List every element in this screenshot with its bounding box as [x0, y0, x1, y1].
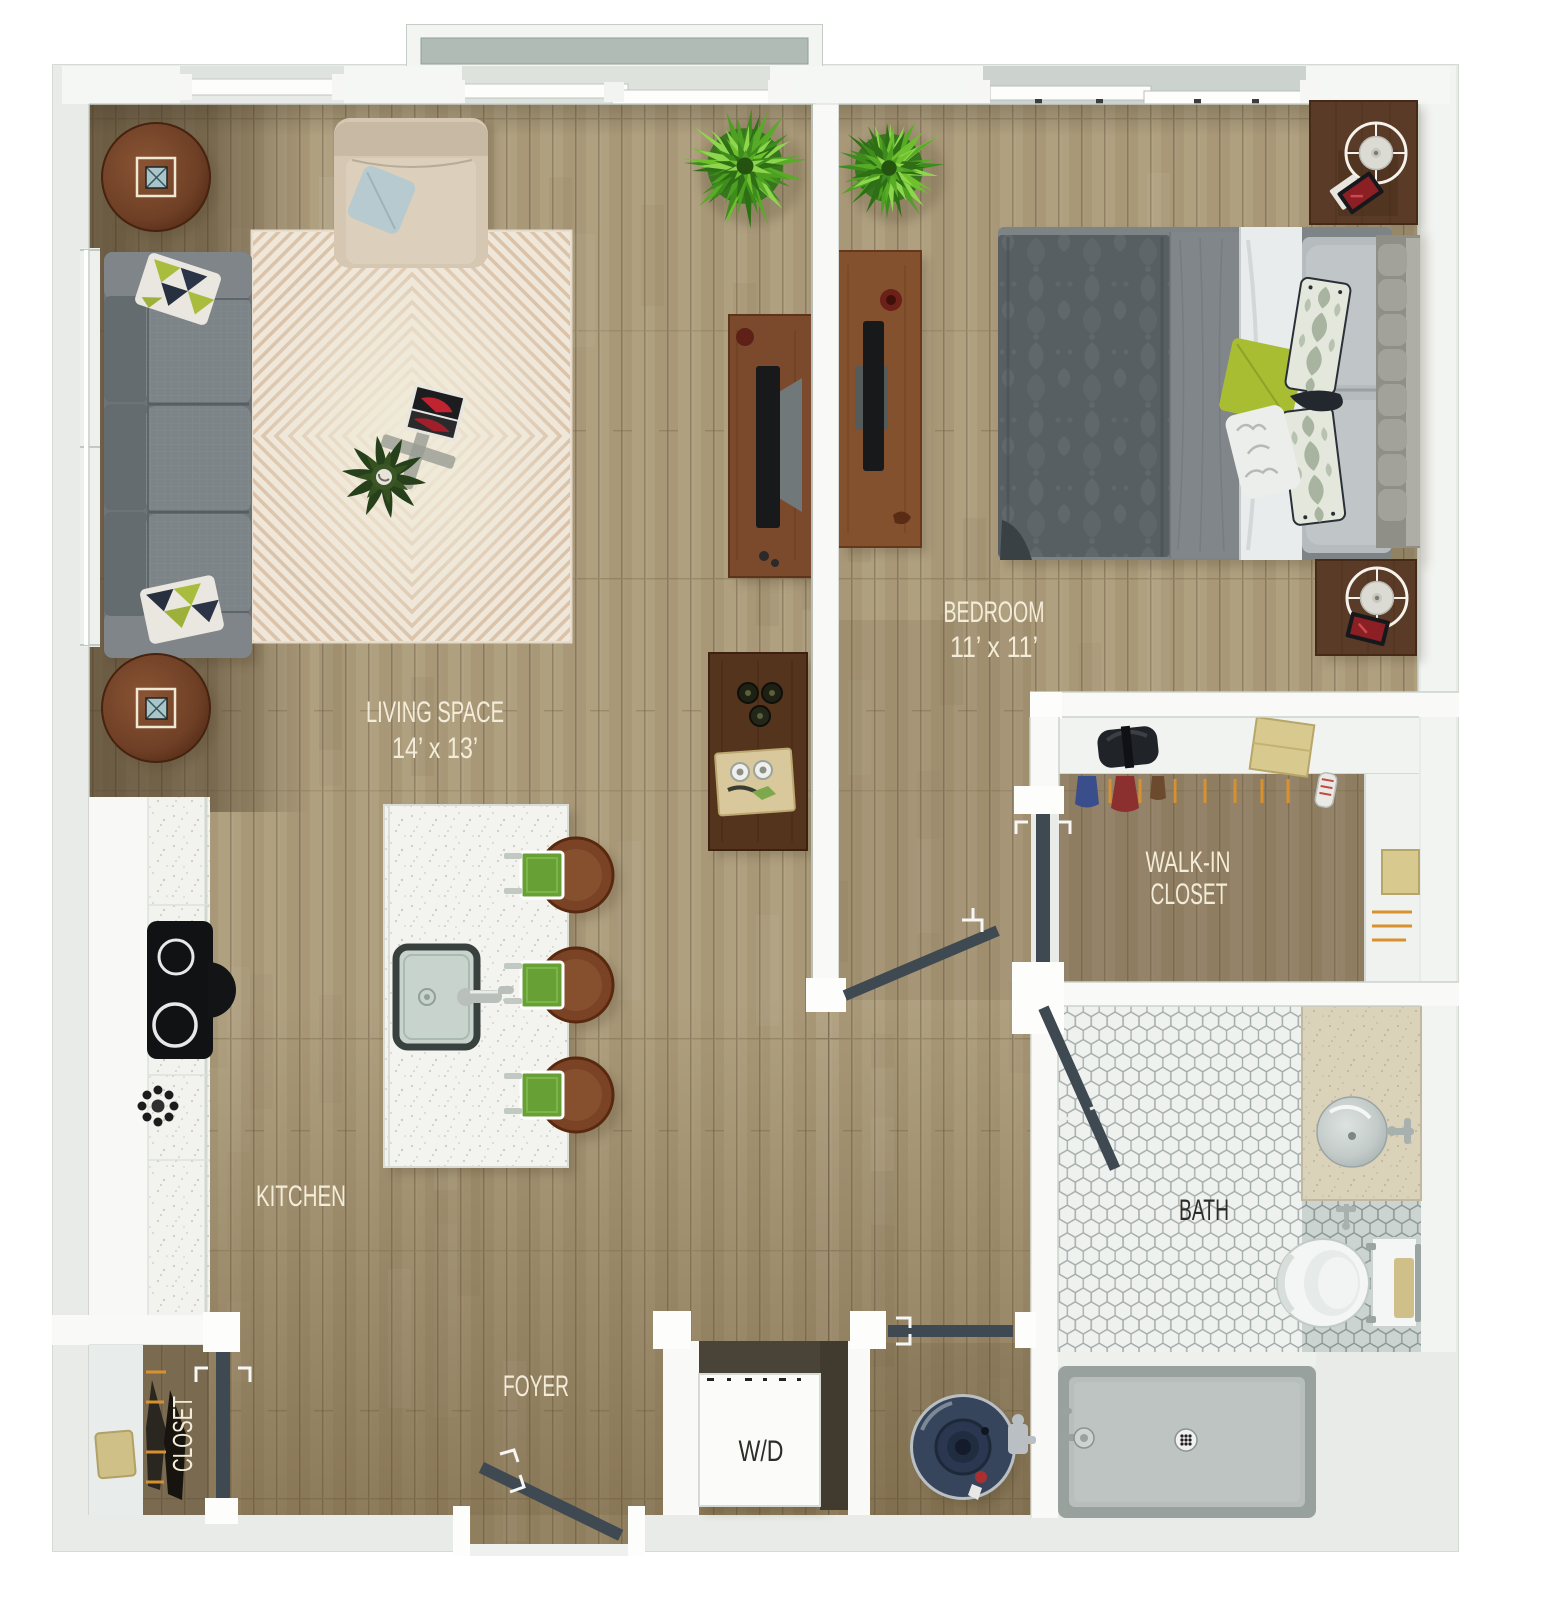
svg-text:11’ x 11’: 11’ x 11’	[950, 631, 1038, 664]
svg-text:CLOSET: CLOSET	[1151, 878, 1228, 911]
svg-text:BEDROOM: BEDROOM	[944, 596, 1045, 629]
svg-text:LIVING SPACE: LIVING SPACE	[366, 696, 504, 729]
svg-text:FOYER: FOYER	[503, 1370, 569, 1403]
svg-text:CLOSET: CLOSET	[167, 1396, 198, 1472]
svg-text:BATH: BATH	[1179, 1194, 1229, 1227]
svg-text:WALK-IN: WALK-IN	[1146, 846, 1231, 879]
svg-text:KITCHEN: KITCHEN	[256, 1180, 346, 1213]
svg-text:W/D: W/D	[739, 1435, 784, 1468]
svg-text:14’ x 13’: 14’ x 13’	[392, 732, 478, 765]
